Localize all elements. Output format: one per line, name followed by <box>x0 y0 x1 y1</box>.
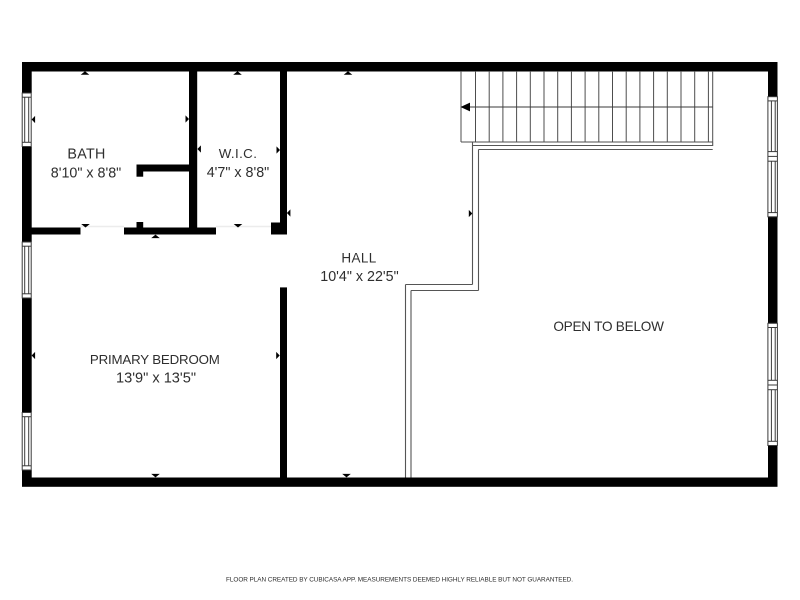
svg-text:PRIMARY BEDROOM: PRIMARY BEDROOM <box>90 352 220 367</box>
svg-text:8'10" x 8'8": 8'10" x 8'8" <box>51 165 121 181</box>
svg-text:BATH: BATH <box>67 147 105 163</box>
svg-text:OPEN TO BELOW: OPEN TO BELOW <box>553 319 664 334</box>
svg-text:W.I.C.: W.I.C. <box>219 146 258 161</box>
svg-text:HALL: HALL <box>341 251 376 266</box>
svg-text:FLOOR PLAN CREATED BY CUBICASA: FLOOR PLAN CREATED BY CUBICASA APP. MEAS… <box>226 576 573 583</box>
svg-text:13'9" x 13'5": 13'9" x 13'5" <box>116 370 196 386</box>
svg-text:4'7" x 8'8": 4'7" x 8'8" <box>207 165 270 181</box>
svg-text:10'4" x 22'5": 10'4" x 22'5" <box>320 269 398 285</box>
